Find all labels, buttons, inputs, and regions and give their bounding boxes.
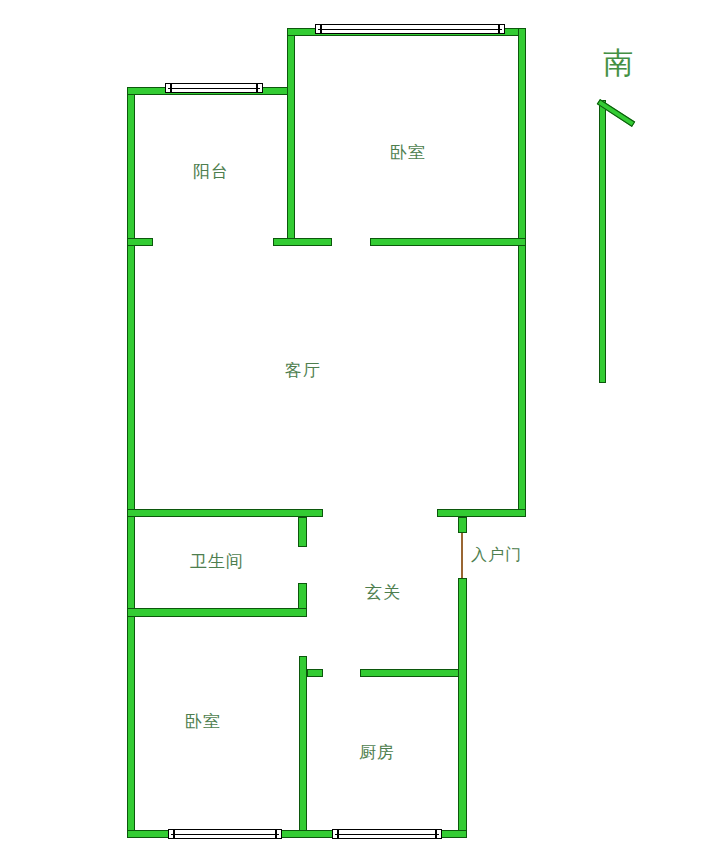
wall-balcony-bedroom-divider — [287, 28, 295, 246]
wall-bathroom-door-stub-top — [298, 517, 307, 547]
bedroom-top-window-icon — [315, 24, 505, 34]
window-tick — [275, 830, 277, 838]
wall-right-upper — [518, 28, 526, 517]
entry-door-line — [461, 533, 463, 578]
floorplan-canvas: 南 阳台 卧室 客厅 卫生间 玄关 入户门 卧室 厨房 — [0, 0, 725, 858]
wall-entry-stub-top — [458, 517, 467, 533]
wall-livingroom-top-crossbar — [273, 238, 332, 246]
window-tick — [337, 830, 339, 838]
kitchen-window-icon — [332, 829, 442, 839]
wall-livingroom-top-stub-left — [127, 238, 153, 246]
window-tick — [170, 84, 172, 92]
balcony-window-icon — [165, 83, 263, 93]
south-arrow-icon — [599, 100, 606, 383]
window-tick — [256, 84, 258, 92]
window-tick — [498, 25, 500, 33]
window-tick — [435, 830, 437, 838]
bedroom-bottom-window-icon — [168, 829, 282, 839]
window-tick — [320, 25, 322, 33]
wall-bathroom-door-stub-bottom — [298, 583, 307, 610]
room-label-kitchen: 厨房 — [359, 744, 395, 761]
room-label-bathroom: 卫生间 — [190, 553, 244, 570]
room-label-balcony: 阳台 — [193, 163, 229, 180]
wall-kitchen-top-stub — [307, 669, 323, 677]
wall-left — [127, 87, 135, 838]
window-tick — [173, 830, 175, 838]
wall-bedroom-top-bottom — [370, 238, 526, 246]
room-label-living-room: 客厅 — [285, 362, 321, 379]
room-label-entry-door: 入户门 — [471, 547, 522, 563]
room-label-bedroom-bottom: 卧室 — [185, 713, 221, 730]
wall-kitchen-top — [360, 669, 460, 677]
wall-right-lower — [458, 578, 467, 838]
wall-bathroom-bottom — [127, 608, 307, 617]
compass-south-label: 南 — [603, 48, 633, 78]
room-label-foyer: 玄关 — [365, 584, 401, 601]
wall-bedroom-bottom-divider — [299, 656, 307, 838]
wall-livingroom-bottom-right — [437, 509, 526, 517]
wall-livingroom-bottom-left — [127, 509, 323, 517]
room-label-bedroom-top: 卧室 — [390, 144, 426, 161]
